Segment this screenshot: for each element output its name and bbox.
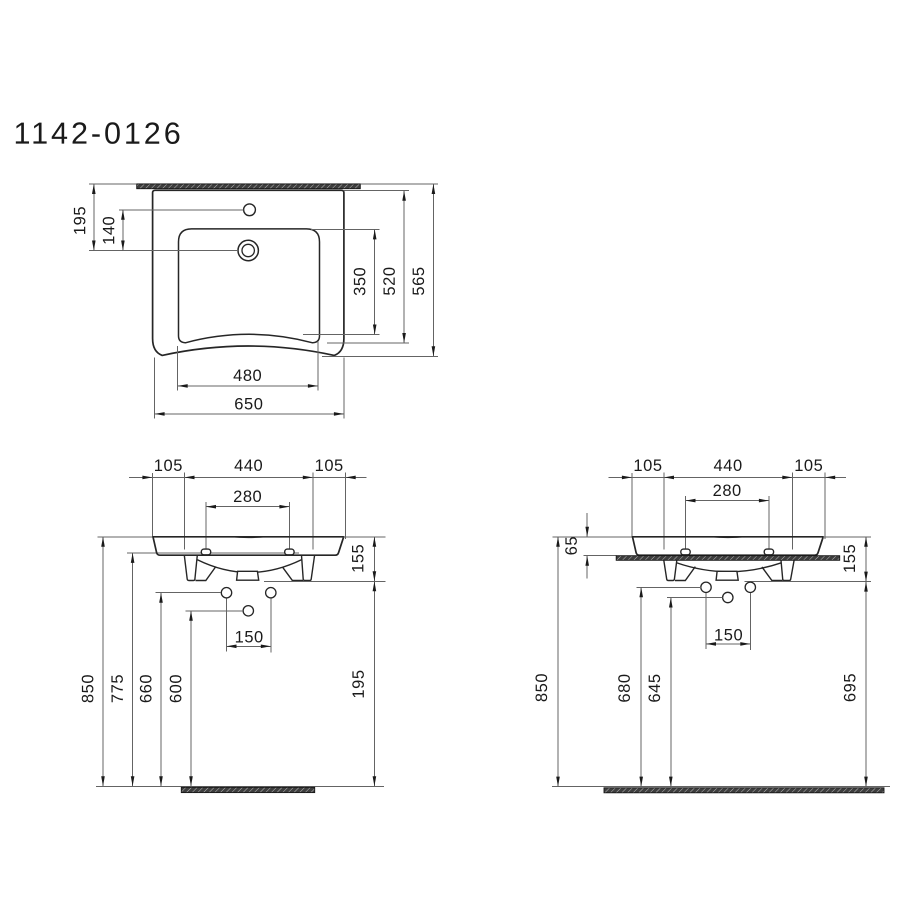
svg-text:850: 850: [79, 674, 97, 703]
svg-text:680: 680: [616, 673, 634, 702]
svg-text:480: 480: [233, 367, 262, 385]
svg-text:350: 350: [351, 267, 369, 296]
svg-text:155: 155: [841, 544, 859, 573]
svg-text:150: 150: [714, 626, 743, 644]
svg-text:105: 105: [794, 457, 823, 475]
svg-text:105: 105: [154, 457, 183, 475]
svg-text:195: 195: [71, 206, 89, 235]
svg-text:65: 65: [563, 536, 581, 555]
svg-text:660: 660: [137, 674, 155, 703]
svg-text:645: 645: [646, 673, 664, 702]
svg-text:775: 775: [109, 674, 127, 703]
svg-text:440: 440: [234, 457, 263, 475]
svg-text:280: 280: [233, 488, 262, 506]
svg-text:195: 195: [350, 669, 368, 698]
svg-text:440: 440: [714, 457, 743, 475]
svg-text:105: 105: [315, 457, 344, 475]
svg-text:650: 650: [234, 395, 263, 413]
svg-text:105: 105: [633, 457, 662, 475]
svg-text:565: 565: [410, 266, 428, 295]
svg-text:520: 520: [381, 266, 399, 295]
svg-text:695: 695: [841, 673, 859, 702]
svg-text:150: 150: [235, 629, 264, 647]
svg-text:850: 850: [533, 673, 551, 702]
svg-text:155: 155: [349, 544, 367, 573]
svg-text:280: 280: [713, 482, 742, 500]
svg-text:140: 140: [100, 216, 118, 245]
svg-text:1142-0126: 1142-0126: [13, 117, 183, 151]
svg-text:600: 600: [167, 674, 185, 703]
